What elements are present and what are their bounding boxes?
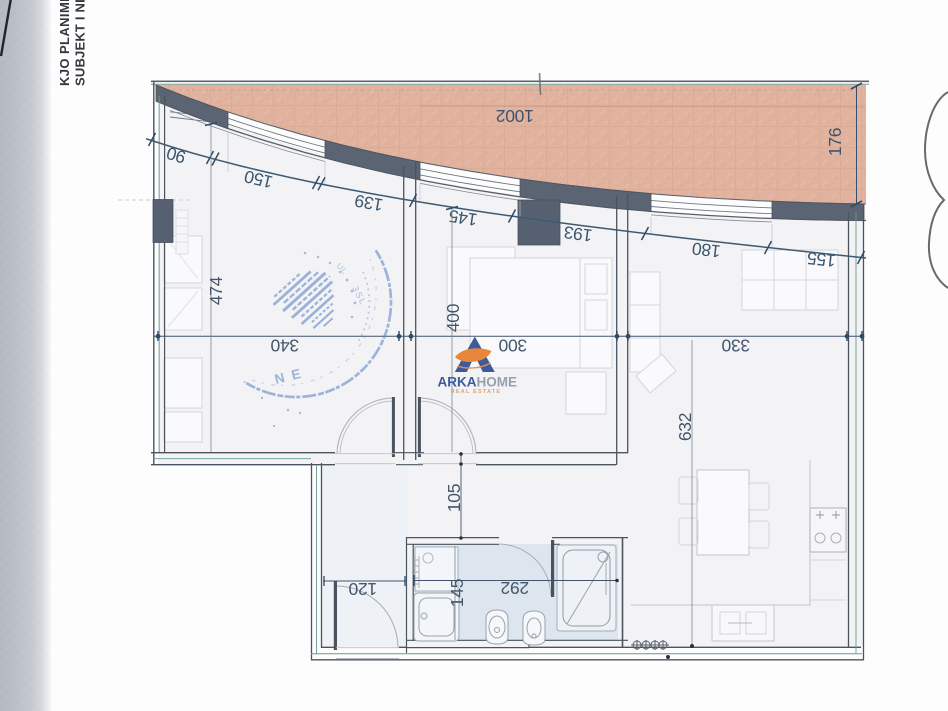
svg-text:105: 105 xyxy=(444,484,464,512)
svg-text:180: 180 xyxy=(691,238,722,261)
svg-text:400: 400 xyxy=(443,303,463,332)
svg-text:145: 145 xyxy=(447,579,467,607)
svg-text:REAL ESTATE: REAL ESTATE xyxy=(451,389,501,395)
svg-text:SUBJEKT I NDARJE: SUBJEKT I NDARJE xyxy=(73,0,88,86)
svg-text:120: 120 xyxy=(348,579,377,599)
svg-text:193: 193 xyxy=(563,222,594,245)
svg-text:330: 330 xyxy=(721,336,750,356)
svg-text:292: 292 xyxy=(501,578,529,598)
svg-text:300: 300 xyxy=(498,336,527,356)
svg-text:340: 340 xyxy=(270,336,299,356)
svg-text:1002: 1002 xyxy=(496,106,534,126)
svg-text:HOME: HOME xyxy=(477,375,518,390)
svg-text:632: 632 xyxy=(675,413,695,441)
svg-text:155: 155 xyxy=(806,248,836,271)
svg-text:474: 474 xyxy=(206,276,226,305)
svg-text:176: 176 xyxy=(825,128,845,156)
svg-text:KJO PLANIMETRI E: KJO PLANIMETRI E xyxy=(57,0,72,86)
svg-text:ARKA: ARKA xyxy=(438,375,477,390)
